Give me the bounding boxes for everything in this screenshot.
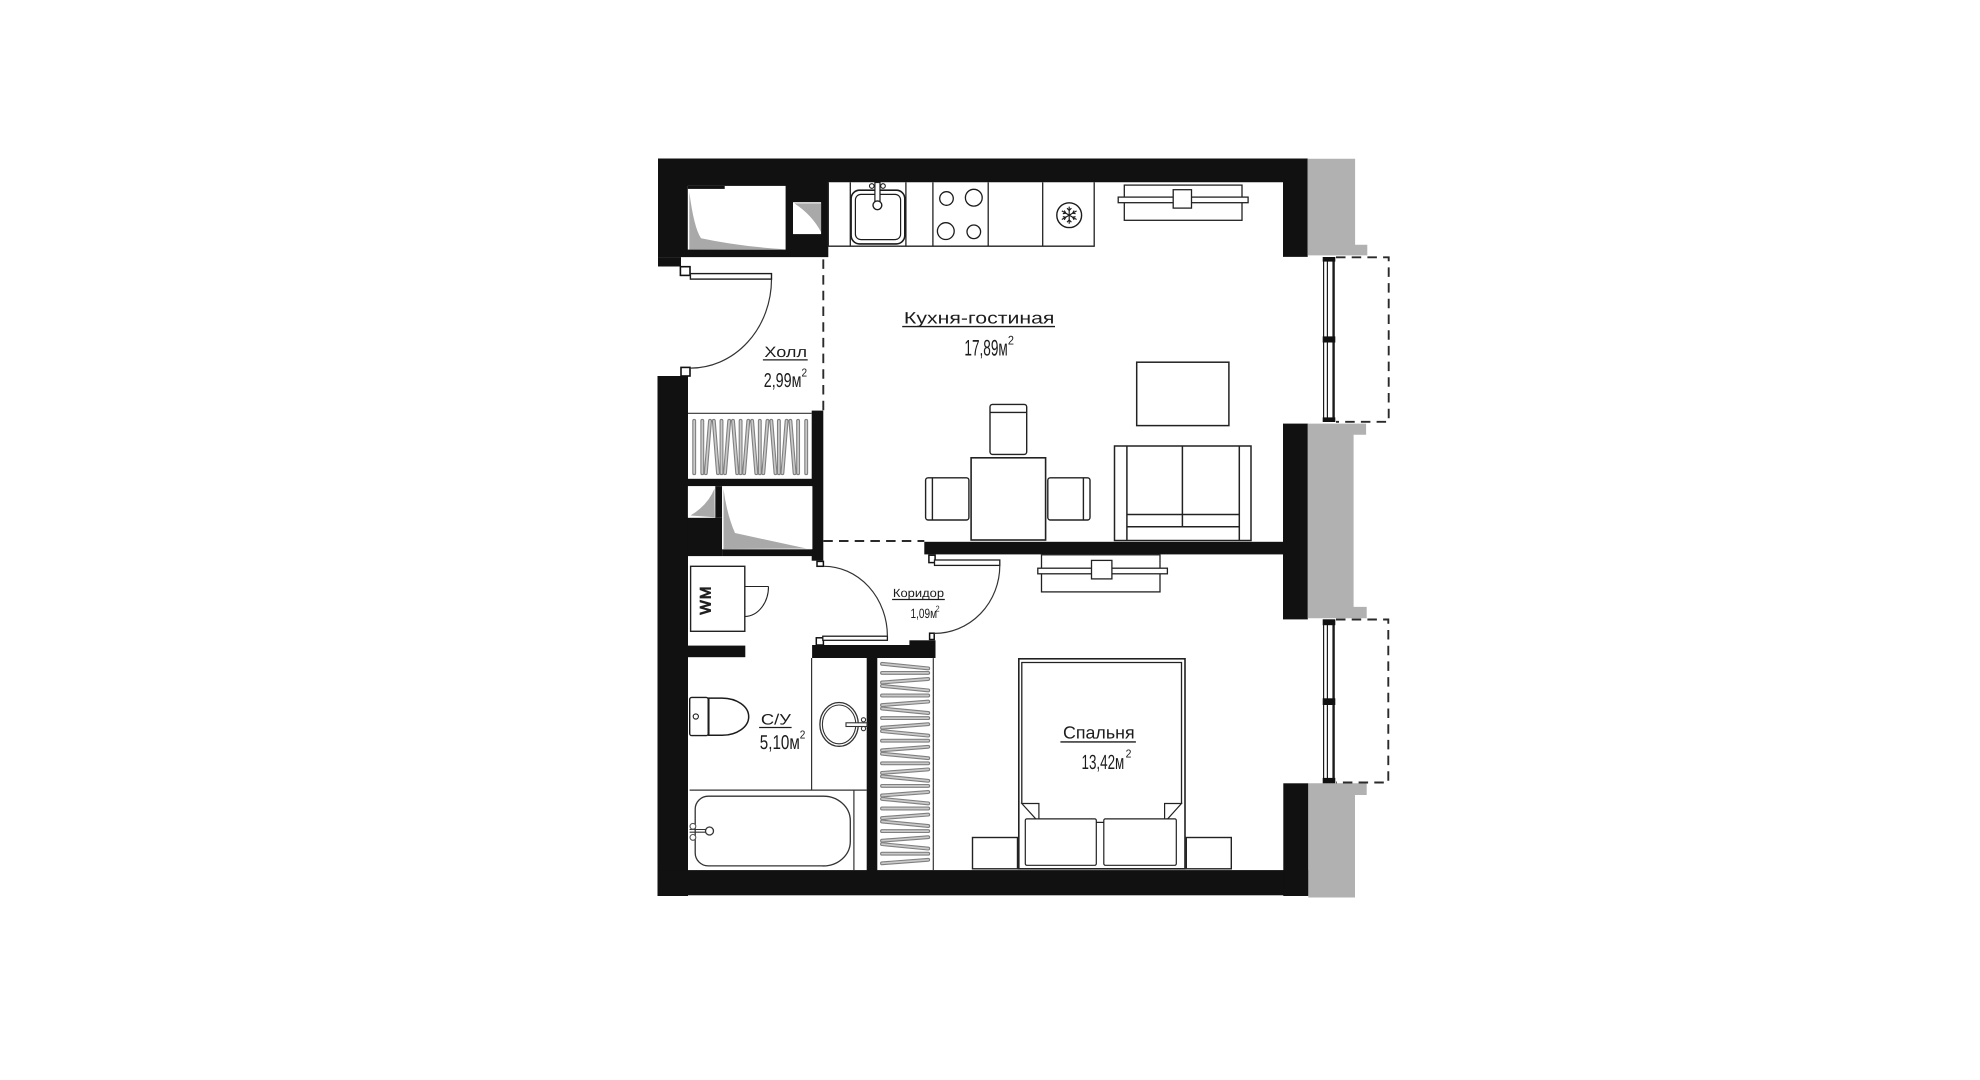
svg-text:2: 2 [1126,749,1132,761]
svg-text:Холл: Холл [764,344,807,361]
svg-text:13,42м: 13,42м [1082,751,1125,774]
svg-text:2,99м: 2,99м [764,370,802,392]
svg-text:2: 2 [802,368,808,380]
svg-text:С/У: С/У [761,712,792,729]
svg-text:Спальня: Спальня [1063,723,1135,743]
svg-text:2: 2 [936,604,940,614]
svg-text:2: 2 [1008,334,1014,348]
svg-text:1,09м: 1,09м [911,606,938,621]
svg-text:WM: WM [698,585,715,614]
svg-text:Коридор: Коридор [893,586,945,600]
svg-text:5,10м: 5,10м [760,732,800,754]
svg-text:2: 2 [800,730,806,742]
svg-text:Кухня-гостиная: Кухня-гостиная [904,309,1055,327]
svg-text:17,89м: 17,89м [964,336,1007,361]
